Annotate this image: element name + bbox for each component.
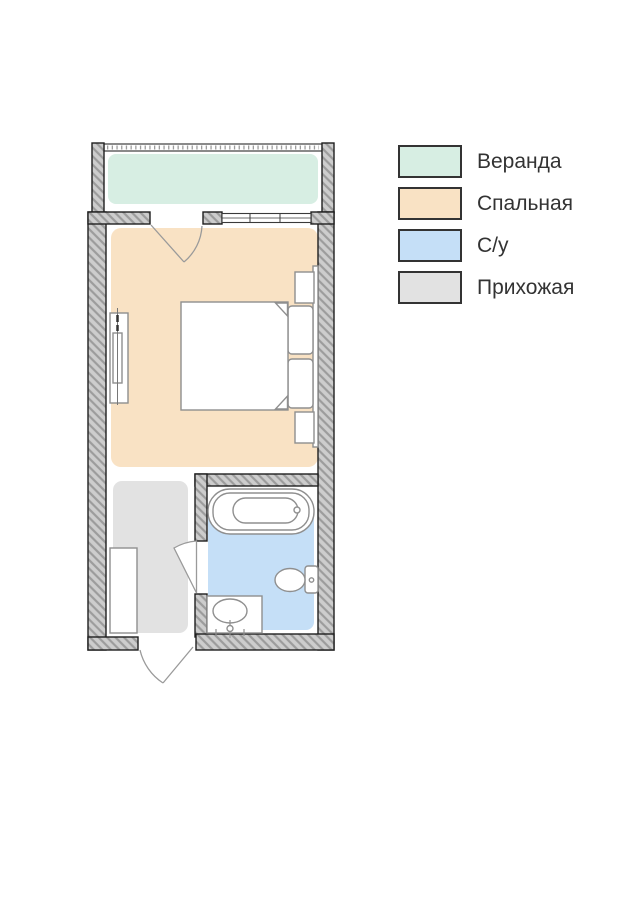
wall-veranda-right (322, 143, 334, 213)
legend-swatch-veranda (398, 145, 462, 178)
legend-label-bathroom: С/у (477, 235, 509, 256)
wall-bottom-left (88, 637, 138, 650)
rail-frame (104, 144, 322, 151)
wall-left-main (88, 212, 106, 650)
legend-swatch-bathroom (398, 229, 462, 262)
toilet-flush-button (309, 578, 313, 582)
legend-item-bathroom: С/у (398, 230, 574, 260)
legend-swatch-hallway (398, 271, 462, 304)
wall-veranda-left (92, 143, 104, 213)
legend-label-hallway: Прихожая (477, 277, 574, 298)
page: Веранда Спальная С/у Прихожая (0, 0, 640, 905)
legend-item-veranda: Веранда (398, 146, 574, 176)
entrance-door-leaf (163, 647, 193, 683)
nightstand-bottom (295, 412, 314, 443)
bathtub-basin (233, 498, 298, 523)
wall-mid-left (88, 212, 150, 224)
legend-item-hallway: Прихожая (398, 272, 574, 302)
legend: Веранда Спальная С/у Прихожая (398, 146, 574, 302)
pillow-top (288, 306, 313, 354)
legend-item-bedroom: Спальная (398, 188, 574, 218)
double-bed-mattress (181, 302, 288, 410)
legend-label-veranda: Веранда (477, 151, 562, 172)
veranda-rail (104, 144, 322, 151)
wall-mid-pier (203, 212, 222, 224)
washbasin-bowl (213, 599, 247, 623)
wall-bathroom-top (195, 474, 318, 486)
entrance-door-arc (140, 650, 163, 683)
nightstand-top (295, 272, 314, 303)
floor-plan (0, 0, 640, 905)
wall-bottom-right (196, 634, 334, 650)
wall-bathroom-left-lower (195, 594, 207, 637)
pillow-bottom (288, 359, 313, 408)
faucet-knob (227, 626, 233, 632)
bathtub-drain (294, 507, 300, 513)
wall-right-main (318, 212, 334, 650)
wall-bathroom-left-upper (195, 474, 207, 541)
toilet-bowl (275, 569, 305, 592)
veranda-floor (108, 154, 318, 204)
wall-mid-right (311, 212, 334, 224)
legend-label-bedroom: Спальная (477, 193, 573, 214)
wardrobe (110, 548, 137, 633)
legend-swatch-bedroom (398, 187, 462, 220)
window (222, 214, 311, 223)
